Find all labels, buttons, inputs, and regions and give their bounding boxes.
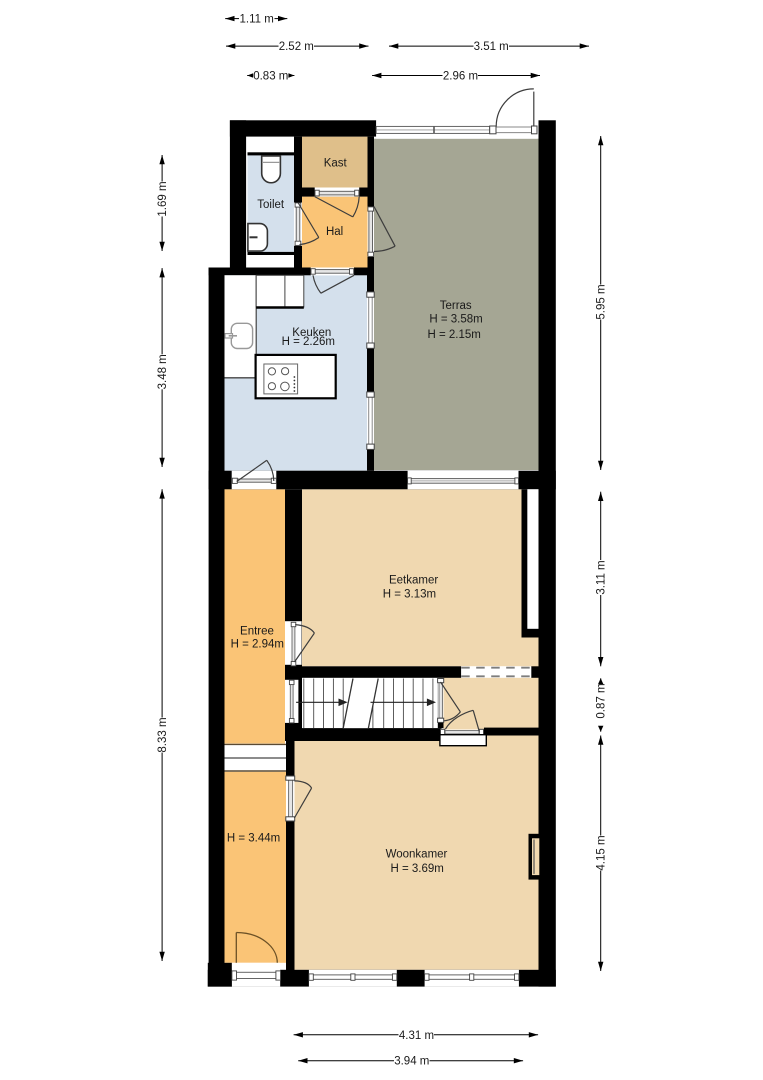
svg-text:1.69 m: 1.69 m xyxy=(157,181,169,216)
svg-text:8.33 m: 8.33 m xyxy=(157,717,169,752)
svg-text:3.48 m: 3.48 m xyxy=(157,354,169,389)
svg-text:Woonkamer: Woonkamer xyxy=(386,849,448,861)
svg-text:Entree: Entree xyxy=(240,626,274,638)
svg-text:Eetkamer: Eetkamer xyxy=(389,575,438,587)
svg-text:2.52 m: 2.52 m xyxy=(279,41,314,53)
svg-text:H = 3.13m: H = 3.13m xyxy=(383,588,436,600)
svg-text:0.87 m: 0.87 m xyxy=(596,683,608,718)
svg-text:4.15 m: 4.15 m xyxy=(596,835,608,870)
svg-text:H = 2.15m: H = 2.15m xyxy=(428,329,481,341)
svg-text:1.11 m: 1.11 m xyxy=(240,14,274,26)
svg-text:2.96 m: 2.96 m xyxy=(443,71,478,83)
svg-text:H = 3.58m: H = 3.58m xyxy=(429,314,482,326)
svg-text:Hal: Hal xyxy=(326,226,343,238)
svg-text:H = 3.69m: H = 3.69m xyxy=(391,863,444,875)
svg-text:H = 2.26m: H = 2.26m xyxy=(282,336,335,348)
svg-text:5.95 m: 5.95 m xyxy=(596,284,608,319)
svg-text:H = 3.44m: H = 3.44m xyxy=(227,832,280,844)
svg-text:H = 2.94m: H = 2.94m xyxy=(231,638,284,650)
svg-text:Toilet: Toilet xyxy=(257,199,285,211)
svg-text:3.94 m: 3.94 m xyxy=(394,1056,429,1068)
svg-text:Terras: Terras xyxy=(440,300,472,312)
svg-text:3.51 m: 3.51 m xyxy=(474,41,509,53)
svg-text:4.31 m: 4.31 m xyxy=(399,1030,434,1042)
svg-text:3.11 m: 3.11 m xyxy=(596,560,608,594)
svg-text:0.83 m: 0.83 m xyxy=(253,71,288,83)
svg-text:Kast: Kast xyxy=(324,158,348,170)
